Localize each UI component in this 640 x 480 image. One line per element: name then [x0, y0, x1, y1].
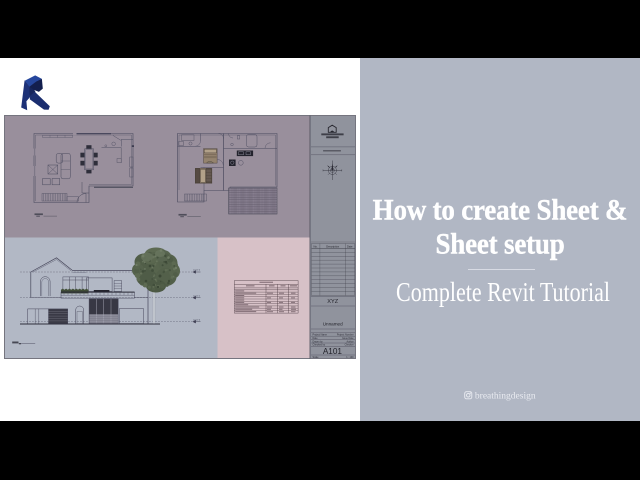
svg-text:Checker: Checker [345, 344, 354, 347]
svg-text:XYZ: XYZ [327, 299, 338, 305]
svg-text:Description: Description [326, 244, 340, 248]
svg-text:Level 0: Level 0 [193, 319, 201, 321]
svg-text:Level 1: Level 1 [193, 295, 201, 297]
svg-text:Unnamed: Unnamed [323, 321, 343, 326]
svg-text:No.: No. [313, 244, 317, 248]
svg-text:Scale: Scale [313, 356, 320, 359]
svg-text:A101: A101 [323, 347, 343, 356]
svg-text:1 : 100: 1 : 100 [346, 356, 354, 359]
svg-text:Level 2: Level 2 [193, 270, 201, 272]
svg-text:Date: Date [347, 244, 353, 248]
